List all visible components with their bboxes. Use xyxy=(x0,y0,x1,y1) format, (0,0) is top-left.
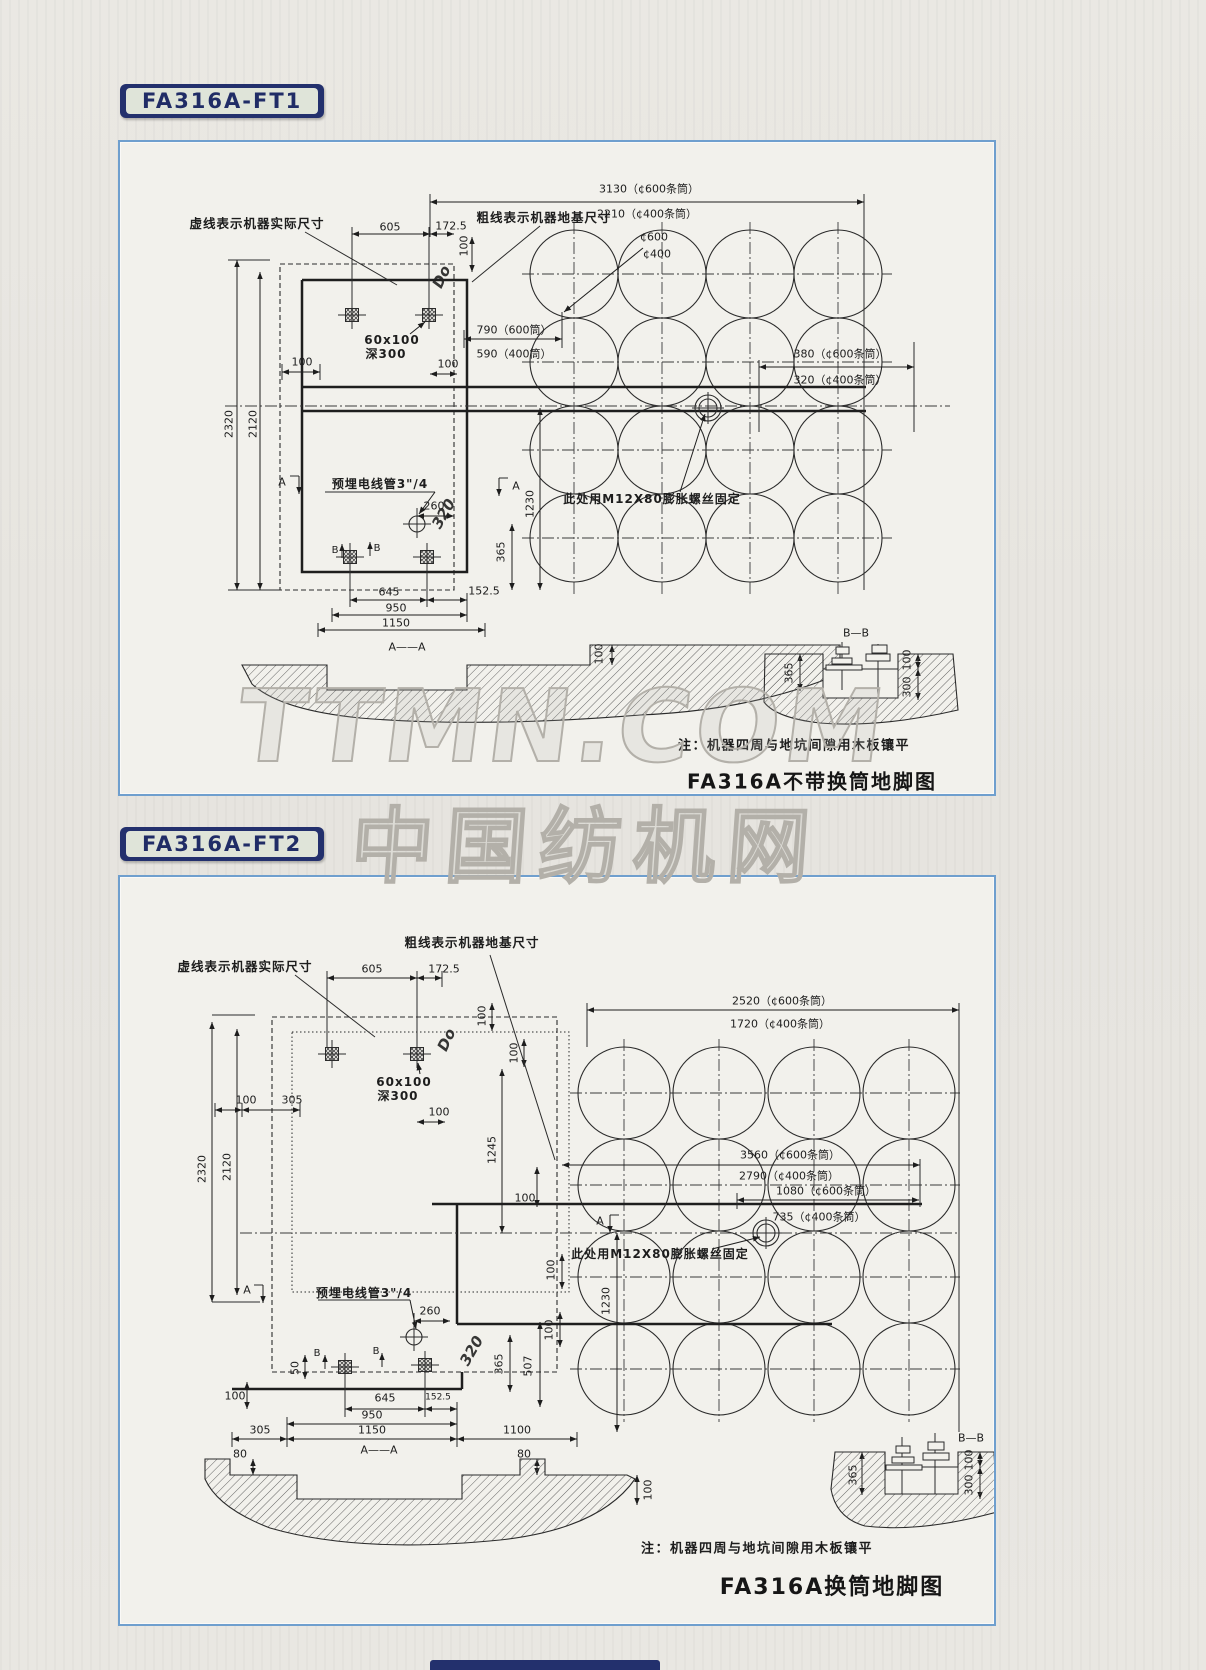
ft1-dim-100-bb: 100 xyxy=(902,650,913,671)
ft1-section-aa-title: A——A xyxy=(388,642,425,653)
leader-lines xyxy=(295,955,760,1329)
ft1-dim-3130: 3130（¢600条筒） xyxy=(599,184,699,195)
ft1-title: FA316A不带换筒地脚图 xyxy=(687,766,937,795)
ft1-dim-645: 645 xyxy=(379,587,400,598)
ft1-dim-365: 365 xyxy=(496,542,507,563)
ft2-section-bb-title: B—B xyxy=(958,1433,984,1444)
ft2-dim-645: 645 xyxy=(375,1393,396,1404)
ft1-dim-100-mid: 100 xyxy=(438,359,459,370)
ft1-section-bb-title: B—B xyxy=(843,628,869,639)
ft2-dim-507: 507 xyxy=(523,1356,534,1377)
ft2-dim-305-left: 305 xyxy=(282,1095,303,1106)
ft1-dim-100-section: 100 xyxy=(594,644,605,665)
ft1-tag-label: FA316A-FT1 xyxy=(126,88,318,114)
ft2-dim-365-bb: 365 xyxy=(848,1465,859,1486)
ft1-dim-790: 790（600筒） xyxy=(477,325,552,336)
machine-plan xyxy=(232,1017,960,1389)
ft1-dim-1150: 1150 xyxy=(382,618,410,629)
machine-plan xyxy=(225,264,950,590)
ft2-dim-1150: 1150 xyxy=(358,1425,386,1436)
ft1-label-thick-foundation-size: 粗线表示机器地基尺寸 xyxy=(476,212,611,225)
dimension-lines xyxy=(237,202,918,700)
ft1-label-conduit: 预埋电线管3"/4 xyxy=(332,478,428,490)
ft2-dim-100-g: 100 xyxy=(225,1391,246,1402)
ft2-label-conduit: 预埋电线管3"/4 xyxy=(316,1287,412,1299)
can-grid xyxy=(570,1039,960,1422)
ft2-title: FA316A换筒地脚图 xyxy=(720,1569,944,1601)
ft1-marker-b-left: B xyxy=(332,546,339,556)
ft1-dim-590: 590（400筒） xyxy=(477,349,552,360)
leader-lines xyxy=(305,226,705,514)
ft2-bolt-note-60x100: 60x100 xyxy=(376,1076,432,1088)
ft2-dim-100-bb: 100 xyxy=(964,1450,975,1471)
ft1-dim-950: 950 xyxy=(386,603,407,614)
ft2-section-a-right: A xyxy=(596,1216,604,1227)
ft2-dim-80-right: 80 xyxy=(517,1449,531,1460)
section-aa-view xyxy=(242,645,848,722)
ft1-drawing xyxy=(120,142,994,794)
ft1-dim-320: 320（¢400条筒） xyxy=(794,375,887,386)
ft2-dim-305-bottom: 305 xyxy=(250,1425,271,1436)
ft2-marker-b-left: B xyxy=(314,1349,321,1359)
ft2-dim-735: 735（¢400条筒） xyxy=(773,1212,866,1223)
ft2-dim-300-bb: 300 xyxy=(964,1475,975,1496)
ft1-dim-2120: 2120 xyxy=(248,410,259,438)
ft1-tag-chip: FA316A-FT1 xyxy=(120,84,324,118)
ft1-dim-2320: 2320 xyxy=(224,410,235,438)
ft2-dim-2790: 2790（¢400条筒） xyxy=(739,1171,839,1182)
ft1-dim-365-bb: 365 xyxy=(784,663,795,684)
ft2-dim-1245: 1245 xyxy=(487,1136,498,1164)
ft2-section-aa-title: A——A xyxy=(360,1445,397,1456)
ft2-dim-1230: 1230 xyxy=(601,1287,612,1315)
section-aa-view xyxy=(205,1459,635,1545)
ft1-dim-100-top: 100 xyxy=(459,236,470,257)
ft2-dim-80-left: 80 xyxy=(233,1449,247,1460)
ft1-bolt-note-deep300: 深300 xyxy=(365,348,406,360)
ft2-dim-605: 605 xyxy=(362,964,383,975)
ft2-dim-100-d: 100 xyxy=(515,1193,536,1204)
ft2-dim-100-c: 100 xyxy=(429,1107,450,1118)
ft2-dim-1080: 1080（¢600条筒） xyxy=(776,1186,876,1197)
ft2-dim-100-e: 100 xyxy=(544,1320,555,1341)
ft2-label-dashed-machine-size: 虚线表示机器实际尺寸 xyxy=(177,961,312,974)
ft1-label-anchor-bolt: 此处用M12X80膨胀螺丝固定 xyxy=(563,493,741,505)
ft1-dim-100-left: 100 xyxy=(292,357,313,368)
next-page-tab-peek xyxy=(430,1660,660,1670)
ft2-dim-260: 260 xyxy=(420,1306,441,1317)
ft1-dim-605: 605 xyxy=(380,222,401,233)
ft2-dim-1720: 1720（¢400条筒） xyxy=(730,1019,830,1030)
ft1-section-a-left: A xyxy=(278,477,286,488)
ft1-dim-1230: 1230 xyxy=(525,490,536,518)
ft2-dim-100-b: 100 xyxy=(509,1043,520,1064)
ft2-panel: 注：机器四周与地坑间隙用木板镶平 FA316A换筒地脚图 粗线表示机器地基尺寸2… xyxy=(118,875,996,1626)
ft2-dim-950: 950 xyxy=(362,1410,383,1421)
ft1-section-a-right: A xyxy=(512,481,520,492)
ft2-dim-100-f: 100 xyxy=(546,1260,557,1281)
ft1-panel: 注：机器四周与地坑间隙用木板镶平 FA316A不带换筒地脚图 虚线表示机器实际尺… xyxy=(118,140,996,796)
ft2-dim-3560: 3560（¢600条筒） xyxy=(740,1150,840,1161)
ft1-note: 注：机器四周与地坑间隙用木板镶平 xyxy=(678,735,910,754)
ft1-bolt-note-60x100: 60x100 xyxy=(364,334,420,346)
catalog-page: { "page": { "watermark_primary": "TTMN.C… xyxy=(0,0,1206,1670)
ft2-bolt-note-deep300: 深300 xyxy=(377,1090,418,1102)
ft1-label-c600: ¢600 xyxy=(640,232,668,243)
ft1-dim-380: 380（¢600条筒） xyxy=(794,349,887,360)
ft2-dim-100-left: 100 xyxy=(236,1095,257,1106)
ft2-label-anchor-bolt: 此处用M12X80膨胀螺丝固定 xyxy=(571,1248,749,1260)
ft1-dim-172-5: 172.5 xyxy=(435,221,467,232)
ft2-tag-label: FA316A-FT2 xyxy=(126,831,318,857)
ft2-dim-2520: 2520（¢600条筒） xyxy=(732,996,832,1007)
ft2-dim-365: 365 xyxy=(494,1354,505,1375)
ft2-drawing xyxy=(120,877,994,1624)
ft2-dim-100-section: 100 xyxy=(643,1480,654,1501)
ft2-dim-2120: 2120 xyxy=(222,1153,233,1181)
ft1-label-dashed-machine-size: 虚线表示机器实际尺寸 xyxy=(189,218,324,231)
ft1-label-c400: ¢400 xyxy=(643,249,671,260)
ft2-tag-chip: FA316A-FT2 xyxy=(120,827,324,861)
ft2-dim-152-5: 152.5 xyxy=(425,1394,451,1403)
ft2-label-thick-foundation-size: 粗线表示机器地基尺寸 xyxy=(404,937,539,950)
ft2-dim-172-5: 172.5 xyxy=(428,964,460,975)
ft1-dim-152-5: 152.5 xyxy=(468,586,500,597)
ft2-note: 注：机器四周与地坑间隙用木板镶平 xyxy=(641,1538,873,1557)
ft2-dim-50: 50 xyxy=(290,1361,301,1375)
ft2-dim-100-a: 100 xyxy=(477,1006,488,1027)
ft1-marker-b-right: B xyxy=(374,544,381,554)
ft2-marker-b-right: B xyxy=(373,1347,380,1357)
ft2-section-a-left: A xyxy=(243,1285,251,1296)
ft1-dim-300-bb: 300 xyxy=(902,677,913,698)
ft1-dim-2210: 2210（¢400条筒） xyxy=(597,209,697,220)
ft2-dim-1100: 1100 xyxy=(503,1425,531,1436)
ft2-dim-2320: 2320 xyxy=(197,1155,208,1183)
